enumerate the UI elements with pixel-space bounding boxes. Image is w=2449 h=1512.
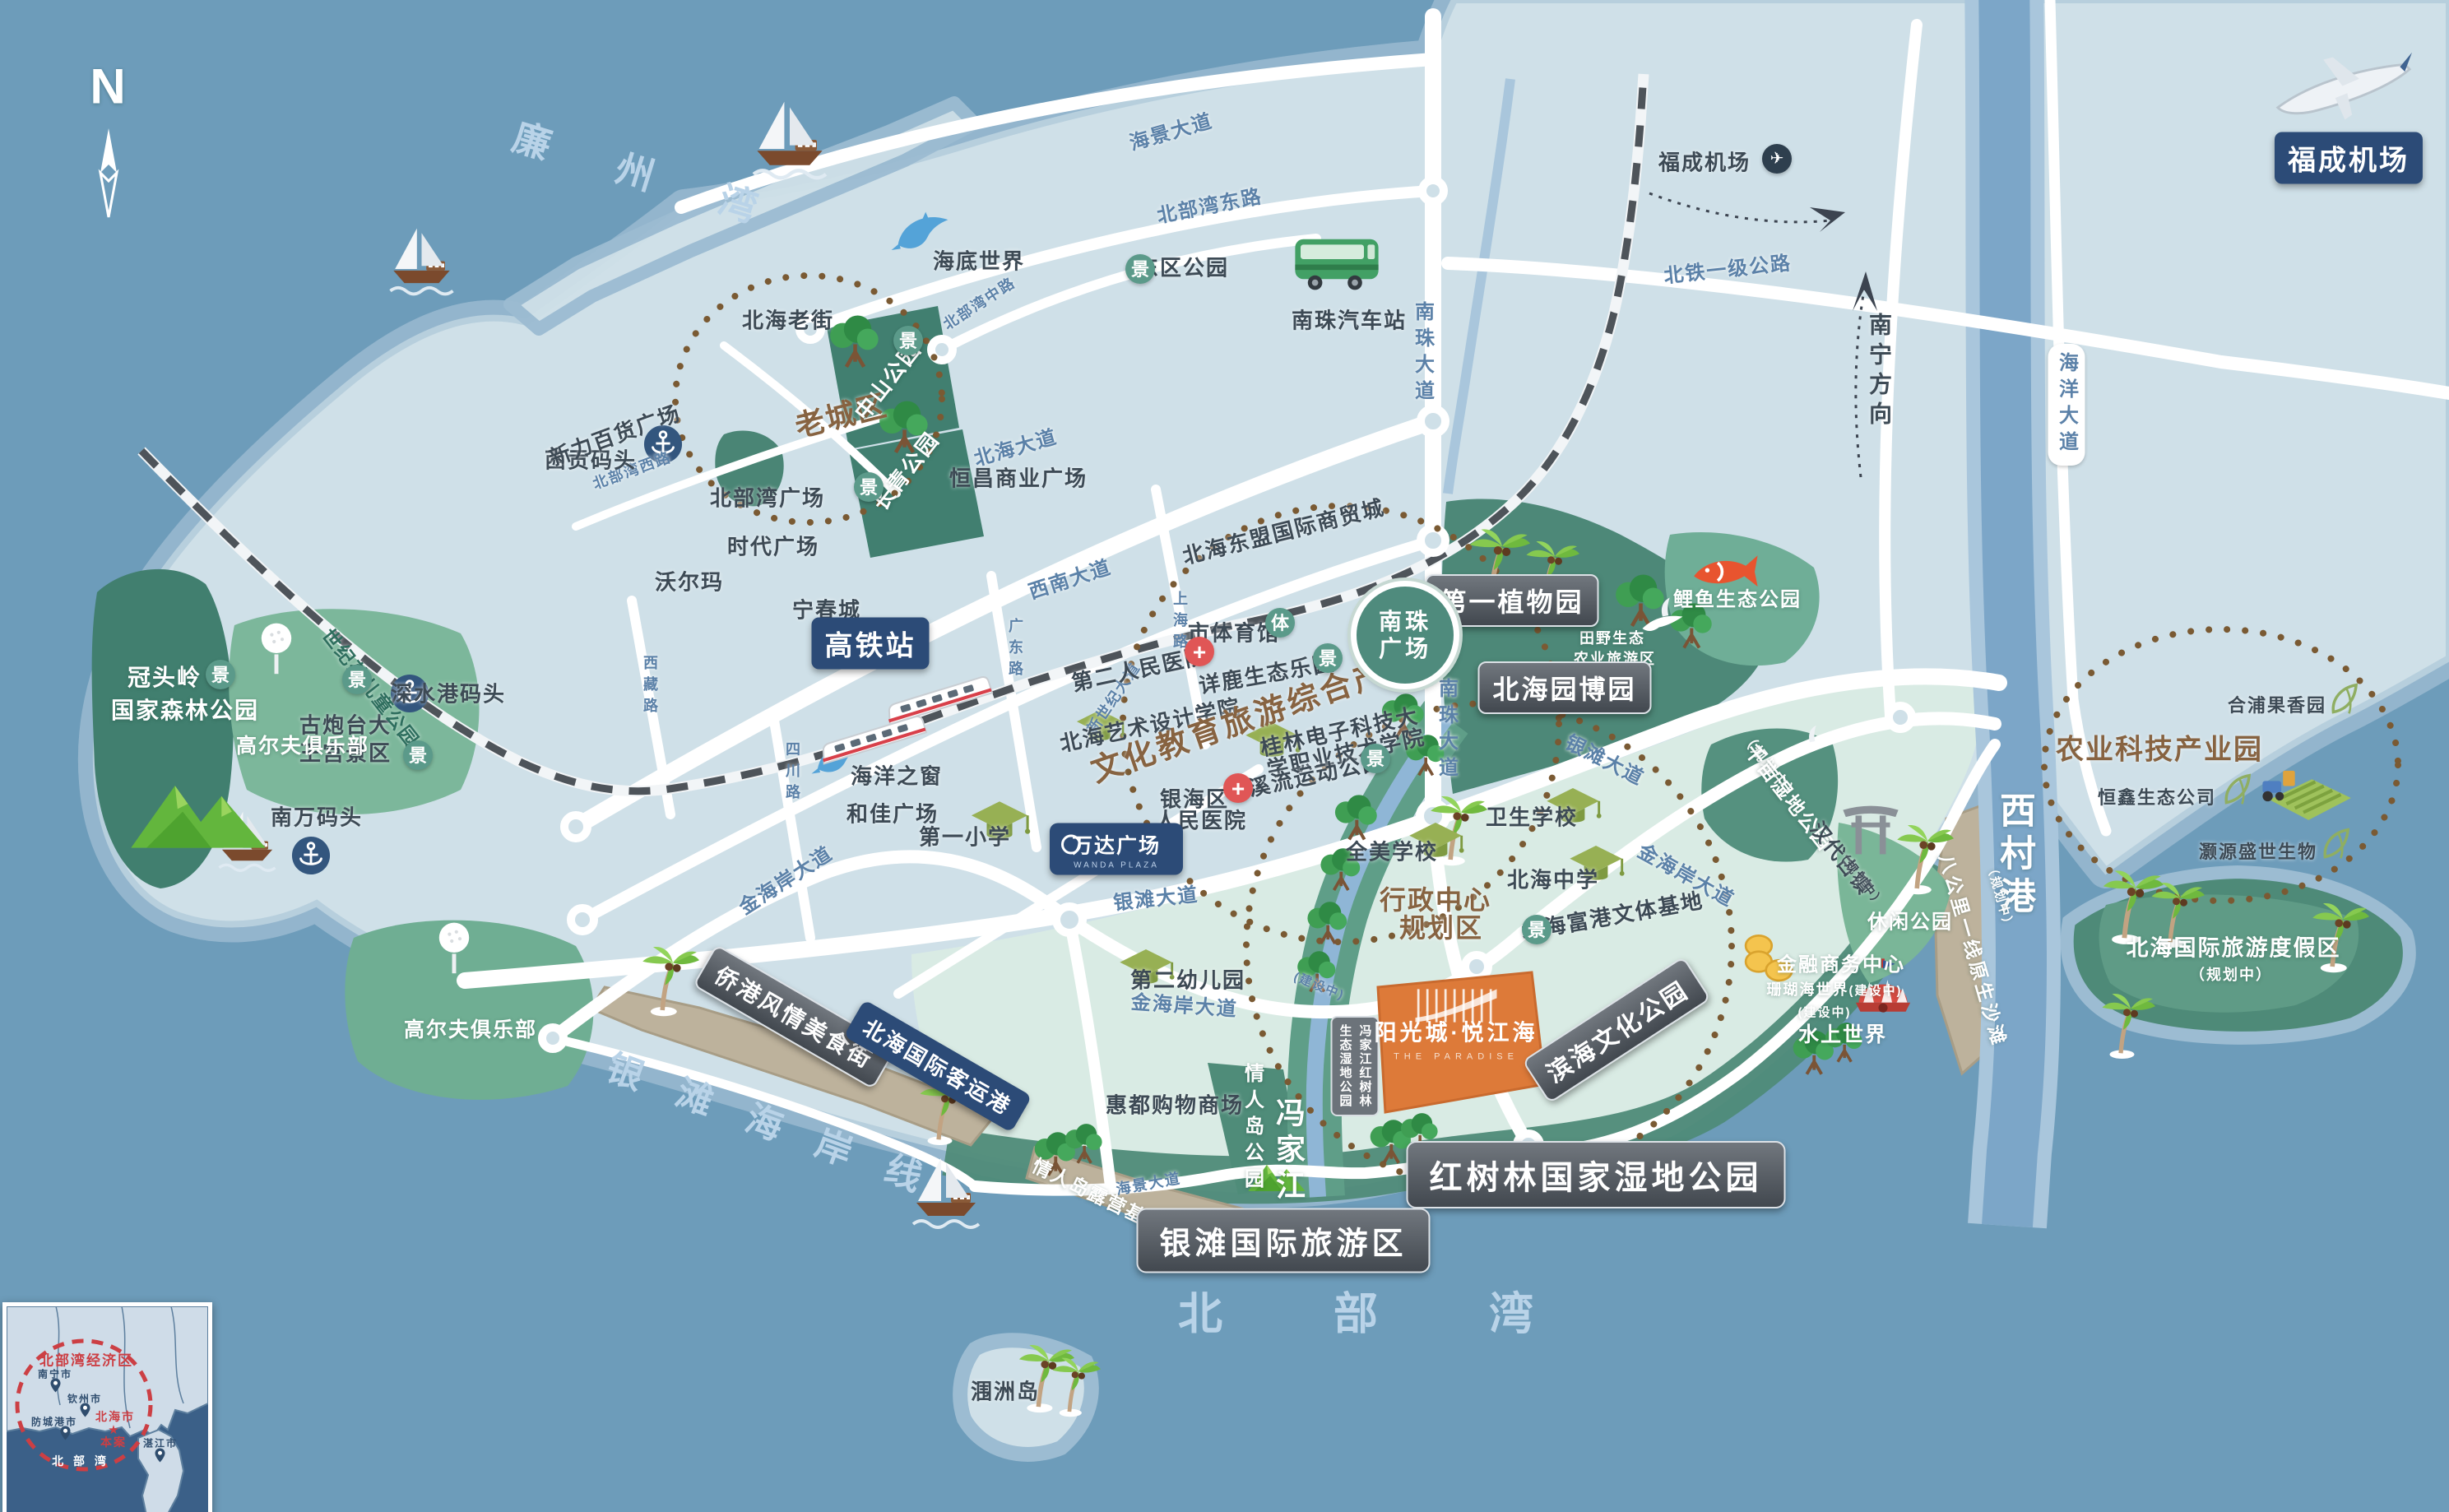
inset-qinzhou: 钦州市 <box>67 1392 102 1406</box>
poi-no1-primary: 第一小学 <box>919 821 1011 851</box>
park-koi: 鲤鱼生态公园 <box>1673 583 1802 612</box>
scenic-icon-fugang: 景 <box>1522 915 1551 944</box>
park-golf-1: 高尔夫俱乐部 <box>236 730 369 759</box>
scenic-icon-east-park: 景 <box>1125 254 1155 284</box>
scenic-icon-century: 景 <box>403 740 433 770</box>
road-sichuan: 四川路 <box>782 741 803 805</box>
station-coach: 南珠汽车站 <box>1292 304 1407 335</box>
park-resort-planning: （规划中） <box>2190 963 2272 985</box>
sport-icon: 体 <box>1265 608 1295 638</box>
poi-huidu-mall: 惠都购物商场 <box>1106 1089 1244 1120</box>
hospital-icon-no2: + <box>1185 637 1214 666</box>
park-guantouling-line2: 国家森林公园 <box>111 693 259 726</box>
inset-gulf: 北 部 湾 <box>52 1453 109 1469</box>
map-canvas: N 廉 州 湾 银滩海岸线 北 部 湾 西村港 冯家江 涠洲岛 福成机场 福成机… <box>0 0 2449 1512</box>
scenic-icon-xianglu: 景 <box>1313 643 1343 673</box>
poi-kindergarten: 第二幼儿园 <box>1130 964 1245 995</box>
station-hsr: 高铁站 <box>812 618 930 670</box>
poi-hengxin: 恒鑫生态公司 <box>2098 783 2216 809</box>
poi-finance-center: 金融商务中心 <box>1777 948 1905 977</box>
poi-walmart: 沃尔玛 <box>655 566 724 596</box>
poi-hengchang: 恒昌商业广场 <box>949 462 1088 493</box>
fengjiang-wetland-label: 生态湿地公园冯家江红树林 <box>1331 1016 1380 1116</box>
nanzhu-plaza: 南珠广场 <box>1351 581 1459 689</box>
inset-map: 北部湾经济区 南宁市 钦州市 防城港市 北海市 ★ 本案 湛江市 北 部 湾 <box>2 1302 212 1512</box>
park-resort: 北海国际旅游度假区 <box>2127 930 2341 962</box>
road-haiyang: 海洋大道 <box>2048 344 2085 466</box>
scenic-icon-zhongshan: 景 <box>893 326 923 355</box>
poi-nanwan-wharf: 南万码头 <box>271 801 363 832</box>
compass-north: N <box>90 58 127 115</box>
park-golf-2: 高尔夫俱乐部 <box>404 1013 537 1043</box>
park-leisure: 休闲公园 <box>1867 906 1953 935</box>
poi-undersea-world: 海底世界 <box>933 245 1025 276</box>
poi-beibuwan-plaza: 北部湾广场 <box>710 482 825 513</box>
poi-hepu-garden: 合浦果香园 <box>2228 691 2326 717</box>
zone-agri: 农业科技产业园 <box>2056 727 2263 768</box>
plane-icon: ✈ <box>1762 144 1792 174</box>
scenic-icon-stream: 景 <box>1361 744 1390 773</box>
poi-weizhou-island: 涠洲岛 <box>971 1375 1040 1406</box>
road-xizang: 西藏路 <box>639 655 661 719</box>
road-guangdong: 广东路 <box>1004 618 1026 682</box>
poi-airport: 福成机场 <box>1658 146 1751 177</box>
project-label: 阳光城·悦江海THE PARADISE <box>1375 1015 1538 1062</box>
sea-beibu-gulf: 北 部 湾 <box>1178 1278 1583 1343</box>
poi-water-world: 水上世界 <box>1798 1018 1887 1048</box>
poi-haoyuan: 灏源盛世生物 <box>2199 837 2317 864</box>
wanda-plaza: 万达广场WANDA PLAZA <box>1050 823 1183 875</box>
airport-badge: 福成机场 <box>2275 132 2423 184</box>
poi-shidai-plaza: 时代广场 <box>727 531 819 561</box>
inset-zhanjiang: 湛江市 <box>143 1436 178 1450</box>
park-yintan-tourist: 银滩国际旅游区 <box>1136 1208 1430 1273</box>
wanda-logo-icon <box>1061 835 1081 855</box>
poi-beihai-middle: 北海中学 <box>1507 864 1599 894</box>
zone-admin-line2: 规划区 <box>1399 907 1483 945</box>
poi-quanmei: 全美学校 <box>1346 836 1438 866</box>
park-mangrove-national: 红树林国家湿地公园 <box>1407 1141 1786 1208</box>
road-nanzhu-n: 南珠大道 <box>1408 301 1437 406</box>
poi-old-street: 北海老街 <box>742 304 834 335</box>
poi-health-school: 卫生学校 <box>1486 801 1578 832</box>
road-nanzhu-s: 南珠大道 <box>1432 678 1461 783</box>
park-tianye-line1: 田野生态 <box>1579 627 1645 648</box>
poi-ocean-window: 海洋之窗 <box>851 760 943 791</box>
park-guantouling-line1: 冠头岭 <box>128 660 202 693</box>
park-lovers-island: 情人岛公园 <box>1238 1063 1267 1194</box>
road-nanning-direction: 南宁方向 <box>1862 313 1895 431</box>
scenic-icon-changqing: 景 <box>854 472 884 502</box>
park-yuanboyuan: 北海园博园 <box>1477 661 1651 714</box>
hospital-icon-yinhai: + <box>1223 773 1253 803</box>
inset-fangchenggang: 防城港市 <box>31 1415 77 1429</box>
poi-deepwater-wharf: 深水港码头 <box>391 678 506 708</box>
scenic-icon-guantouling: 景 <box>206 660 235 689</box>
inset-nanning: 南宁市 <box>38 1367 72 1381</box>
poi-coral-world: 珊瑚海世界(建设中) <box>1767 978 1903 999</box>
scenic-icon-fort: 景 <box>342 665 372 694</box>
inset-site: 本案 <box>100 1434 127 1450</box>
river-fengjia: 冯家江 <box>1267 1097 1310 1206</box>
